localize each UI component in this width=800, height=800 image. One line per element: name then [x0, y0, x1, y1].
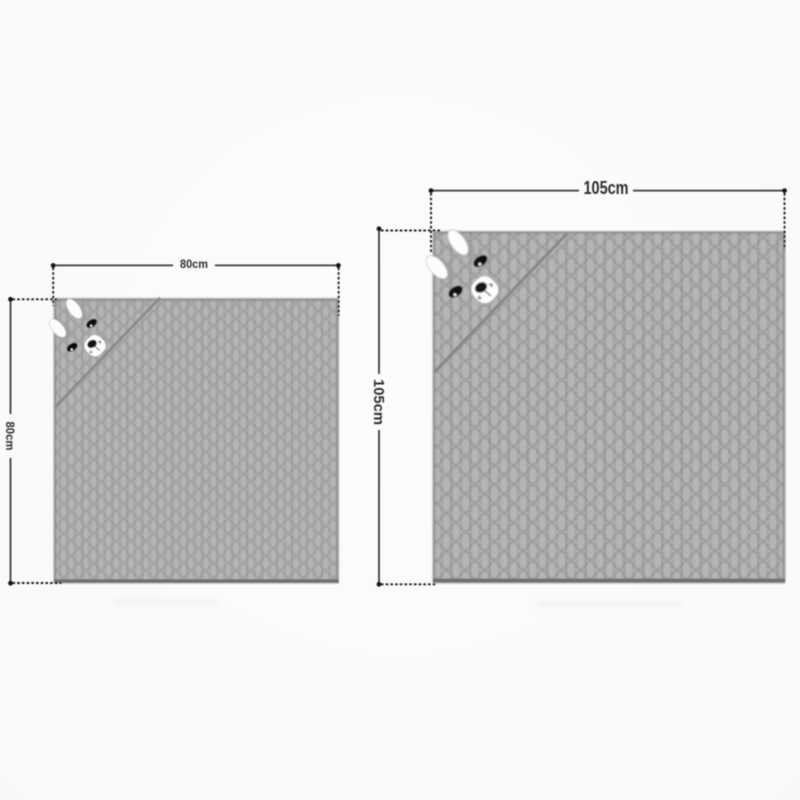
- svg-text:80cm: 80cm: [3, 422, 15, 451]
- svg-text:105cm: 105cm: [370, 379, 387, 425]
- svg-text:105cm: 105cm: [584, 178, 629, 198]
- svg-text:80cm: 80cm: [180, 259, 208, 271]
